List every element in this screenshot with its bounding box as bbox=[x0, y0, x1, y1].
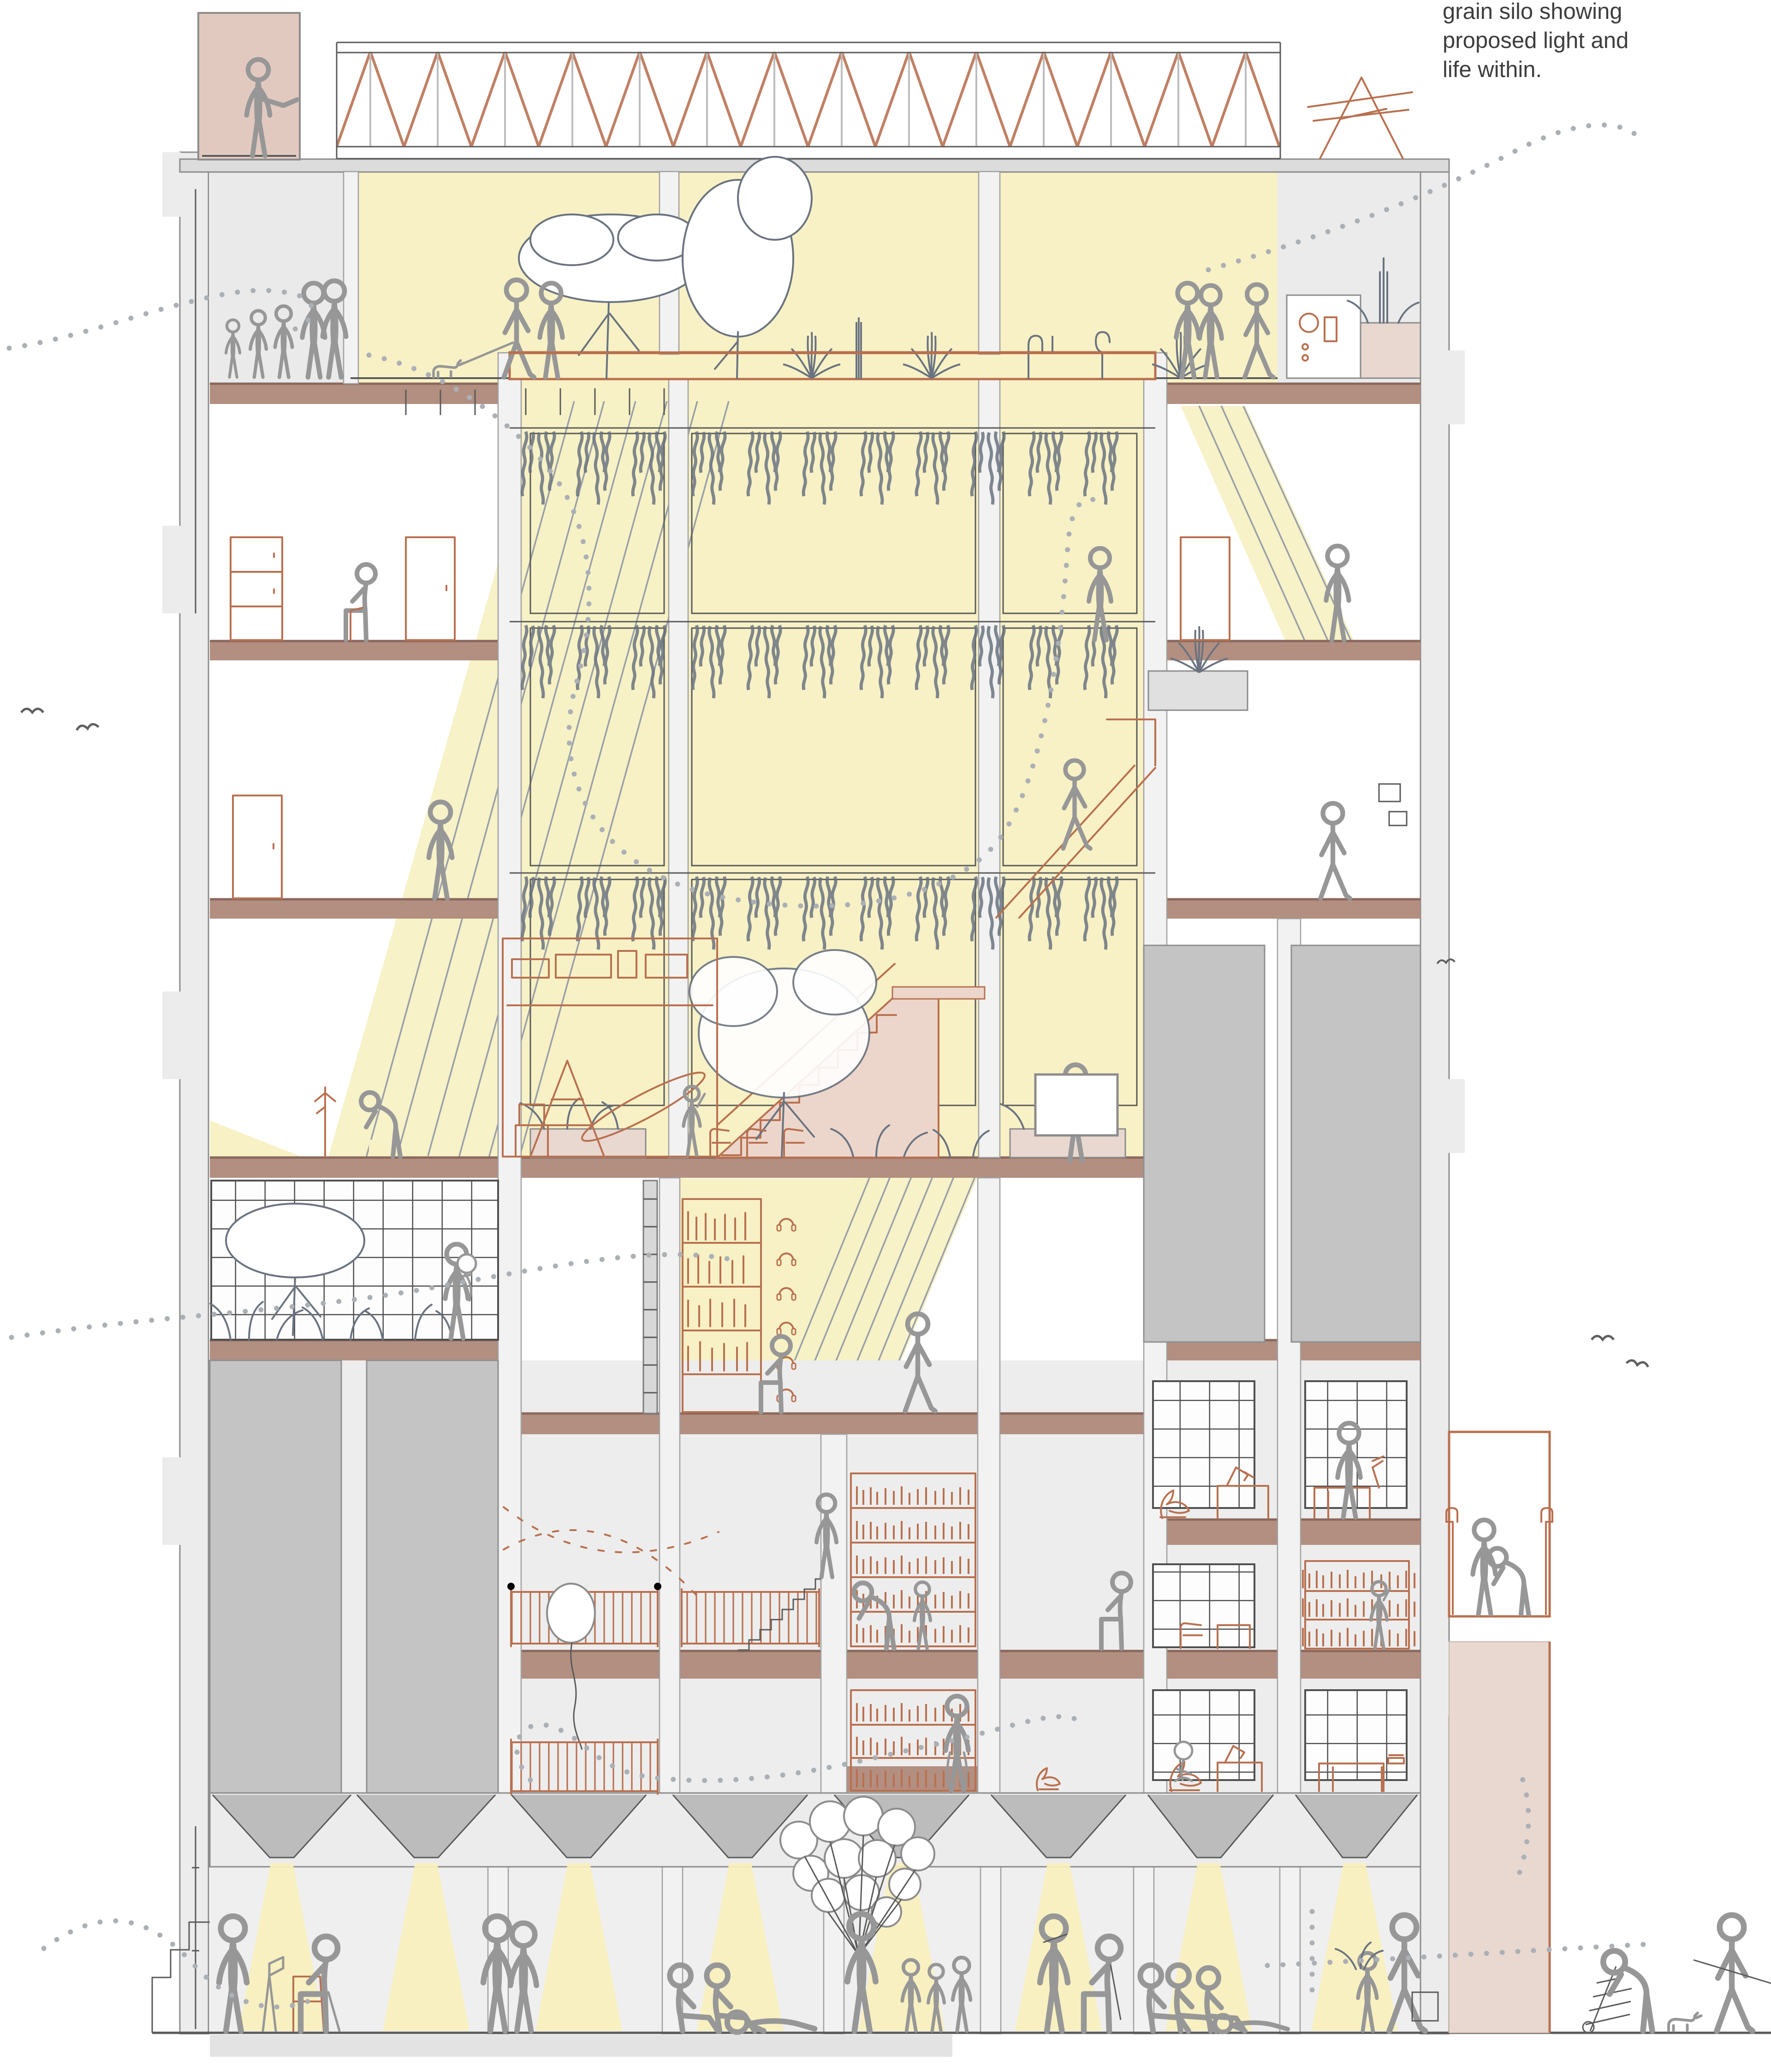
sawhorse-trestle bbox=[1308, 77, 1412, 159]
door-right bbox=[1181, 537, 1230, 640]
grain-silo-section-drawing: grain silo showing proposed light and li… bbox=[0, 0, 1771, 2072]
slab bbox=[210, 641, 510, 660]
wall-pilaster-right bbox=[1448, 350, 1465, 424]
slab bbox=[510, 1413, 1155, 1434]
figure-phone-walker bbox=[1320, 803, 1350, 898]
section-canvas bbox=[0, 0, 1771, 2072]
fountain-leaf bbox=[856, 318, 861, 378]
wall-art bbox=[1379, 784, 1400, 801]
wall-pilaster-right bbox=[1448, 1079, 1465, 1153]
silo-bin bbox=[210, 1360, 341, 1793]
study-window bbox=[1153, 1381, 1254, 1508]
roof-slab bbox=[180, 159, 1449, 172]
wall-pilaster bbox=[162, 1457, 181, 1545]
bird-icon bbox=[21, 709, 43, 712]
roof-planter bbox=[1361, 323, 1420, 378]
wall-pilaster bbox=[162, 991, 181, 1079]
bird-icon bbox=[1592, 1336, 1614, 1340]
study-window bbox=[1153, 1690, 1254, 1780]
silo-bin bbox=[1144, 945, 1265, 1342]
basement-strip bbox=[210, 2035, 952, 2057]
study-window bbox=[1305, 1381, 1407, 1508]
slab bbox=[210, 899, 510, 919]
drawing-caption: grain silo showing proposed light and li… bbox=[1443, 0, 1747, 84]
slab bbox=[210, 1340, 510, 1360]
wall-art bbox=[1389, 812, 1407, 825]
pink-wall bbox=[1449, 1642, 1550, 2033]
wall-pilaster bbox=[162, 152, 181, 217]
hand-truck-mover bbox=[1583, 1951, 1652, 2033]
right-balcony bbox=[1446, 1432, 1552, 2033]
caption-line-3: life within. bbox=[1443, 55, 1747, 84]
bird-icon bbox=[1626, 1360, 1649, 1367]
caption-line-1: grain silo showing bbox=[1443, 0, 1747, 26]
roof-zone bbox=[198, 13, 1412, 160]
wall-pilaster bbox=[162, 526, 181, 613]
bird-icon bbox=[76, 724, 99, 730]
right-outer-wall bbox=[1420, 159, 1449, 2034]
bedroom-l5 bbox=[231, 537, 455, 640]
elevator-overrun bbox=[198, 13, 300, 160]
dog bbox=[1669, 2013, 1701, 2031]
silo-bin bbox=[1291, 945, 1420, 1342]
slab bbox=[1155, 384, 1420, 404]
slab bbox=[210, 384, 510, 404]
slab bbox=[1144, 899, 1420, 919]
study-window bbox=[1305, 1690, 1407, 1780]
roof-truss bbox=[337, 52, 1280, 147]
winter-garden bbox=[210, 1181, 498, 1340]
left-outer-wall bbox=[180, 152, 208, 2034]
street-right bbox=[1583, 1915, 1771, 2033]
study-window bbox=[1153, 1564, 1254, 1647]
slab bbox=[210, 1158, 1155, 1178]
silo-bin bbox=[367, 1360, 498, 1793]
board-carrier bbox=[1694, 1915, 1771, 2031]
caption-line-2: proposed light and bbox=[1443, 26, 1747, 55]
